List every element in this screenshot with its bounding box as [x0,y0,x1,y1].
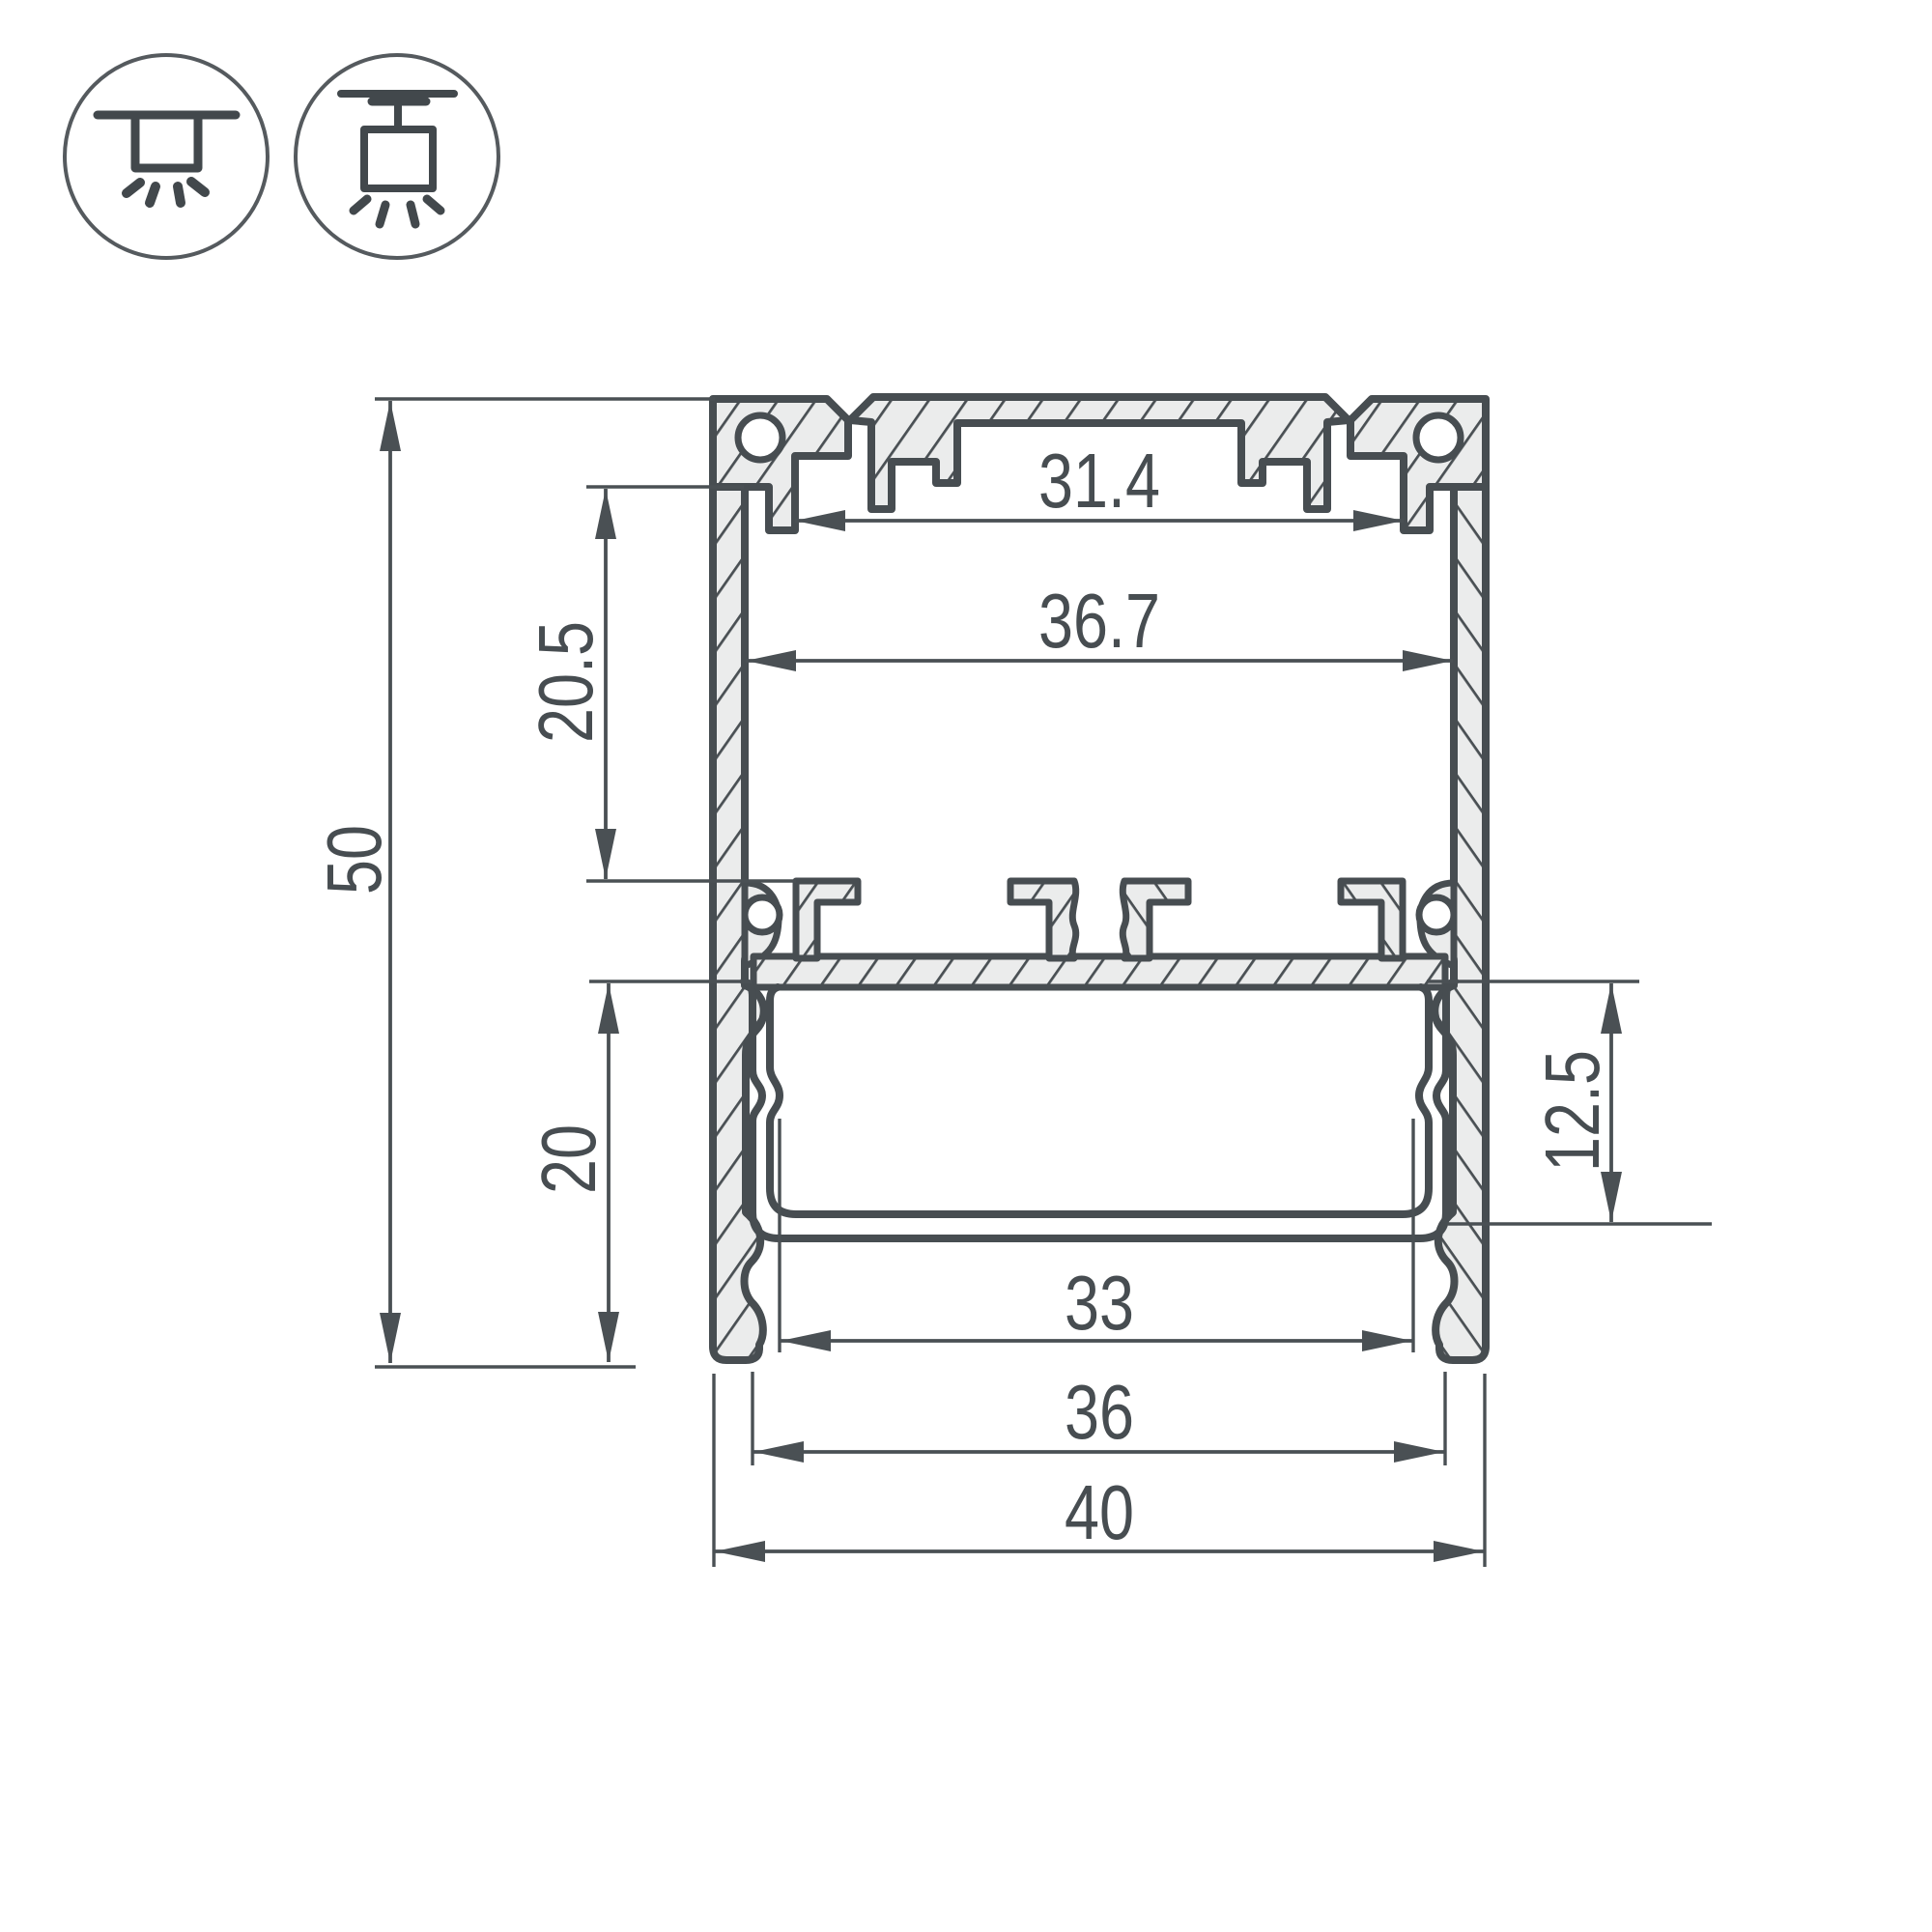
svg-text:12.5: 12.5 [1529,1050,1615,1172]
svg-text:50: 50 [311,825,397,895]
svg-text:31.4: 31.4 [1038,438,1160,524]
svg-text:20: 20 [526,1124,611,1194]
svg-text:36: 36 [1065,1369,1134,1455]
svg-text:20.5: 20.5 [523,621,609,743]
svg-text:33: 33 [1065,1260,1134,1346]
svg-text:36.7: 36.7 [1038,578,1160,664]
svg-text:40: 40 [1065,1469,1134,1555]
